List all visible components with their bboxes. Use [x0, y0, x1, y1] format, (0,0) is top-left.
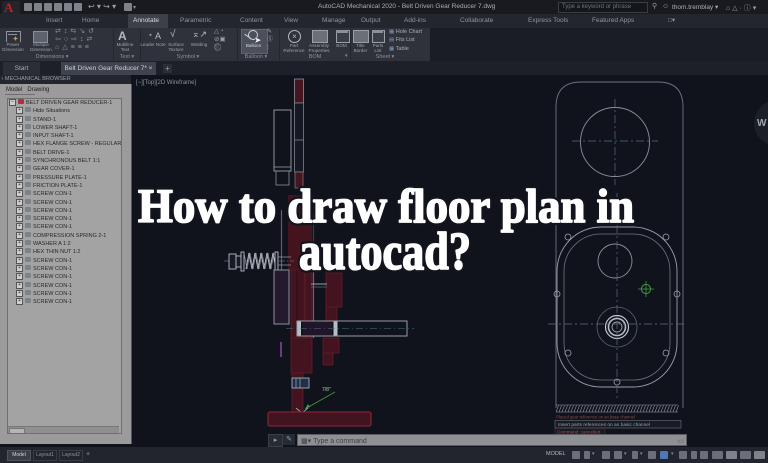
svg-text:W: W [757, 118, 767, 129]
svg-text:Placed gear reference on an ba: Placed gear reference on an base channel [556, 415, 635, 420]
svg-text:7/8": 7/8" [322, 387, 331, 393]
svg-text:Insert parts references on an: Insert parts references on an basic chan… [558, 422, 650, 428]
svg-text:autocad?: autocad? [299, 223, 471, 281]
svg-text:[−][Top][2D Wireframe]: [−][Top][2D Wireframe] [136, 80, 197, 86]
